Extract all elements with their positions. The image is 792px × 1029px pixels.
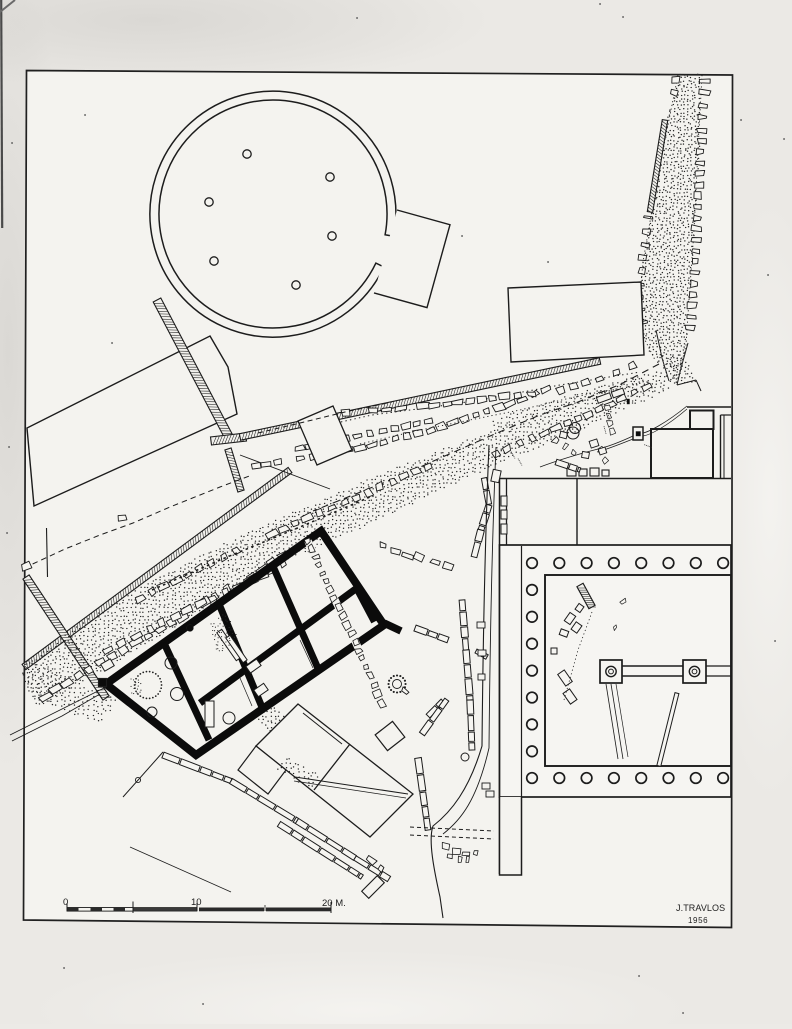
svg-text:10: 10 [191,897,202,908]
svg-text:1956: 1956 [688,916,708,925]
svg-text:J.TRAVLOS: J.TRAVLOS [676,903,725,913]
svg-text:0: 0 [63,897,68,908]
svg-text:20 M.: 20 M. [322,898,346,909]
